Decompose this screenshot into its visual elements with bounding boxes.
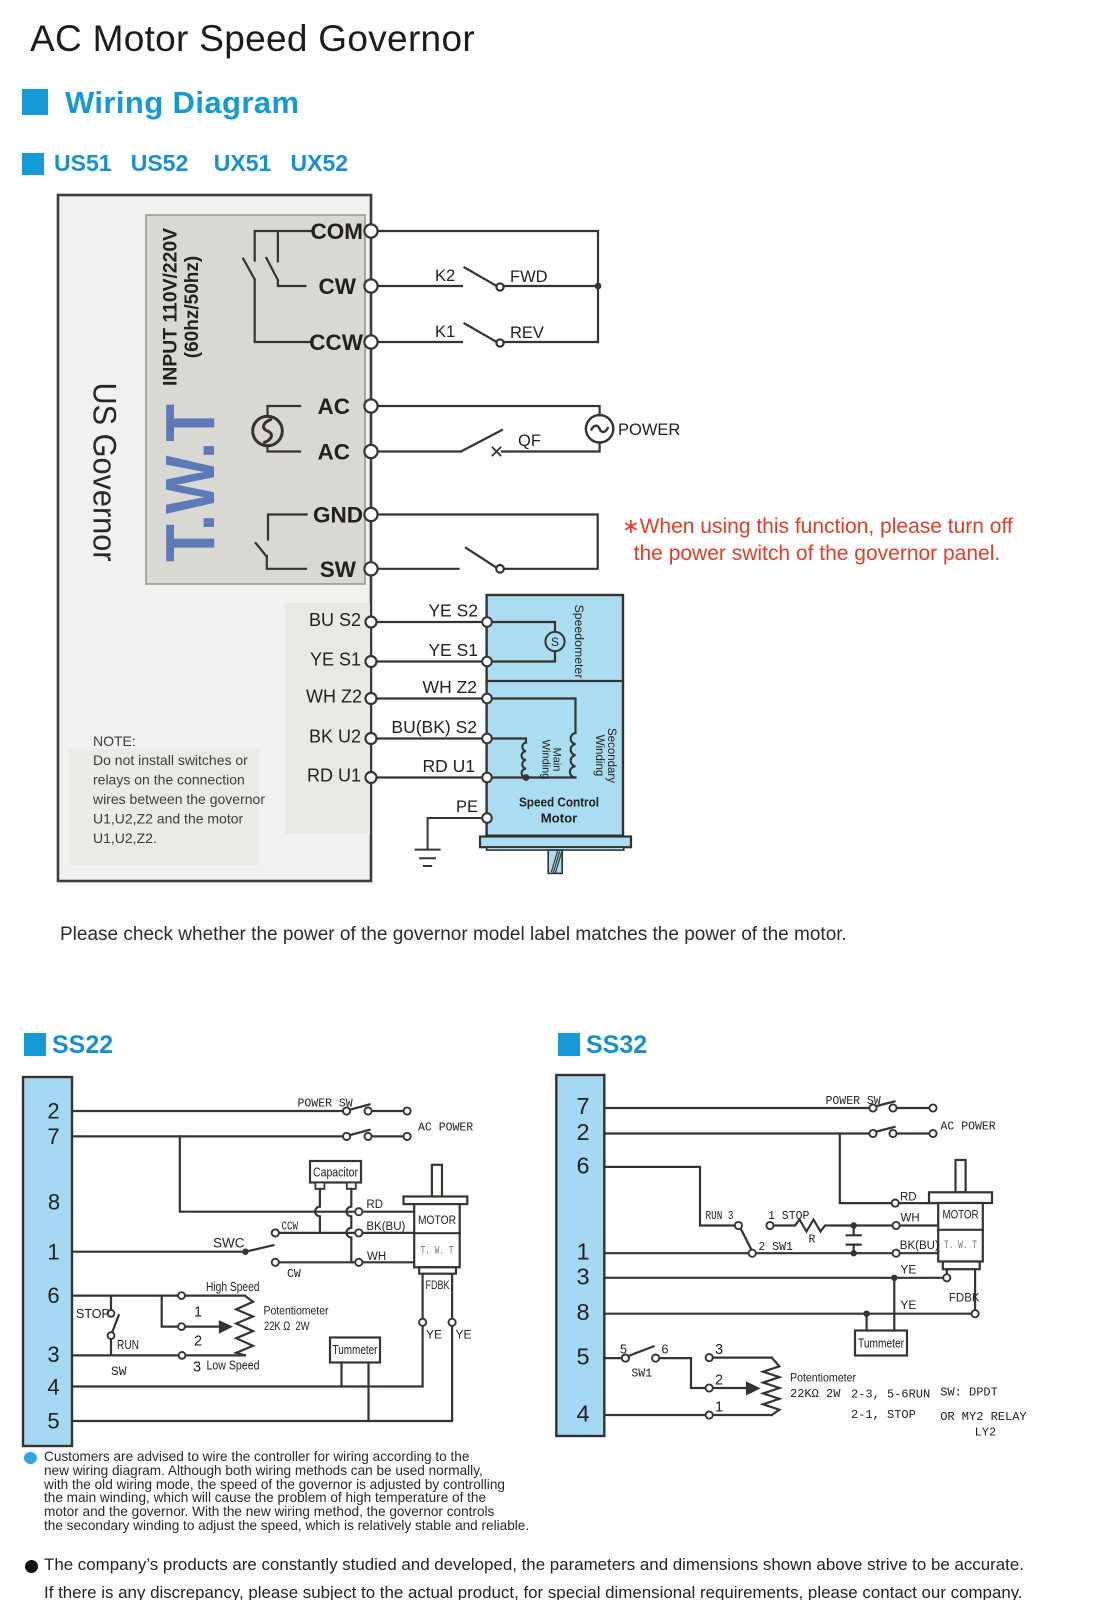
svg-text:2: 2 — [47, 1099, 59, 1124]
svg-text:2: 2 — [194, 1334, 202, 1350]
svg-text:U1,U2,Z2 and the motor: U1,U2,Z2 and the motor — [93, 811, 244, 827]
svg-text:CW: CW — [319, 274, 357, 299]
svg-text:Speedometer: Speedometer — [572, 605, 586, 679]
svg-text:PE: PE — [456, 798, 478, 816]
svg-text:T.W.T: T.W.T — [151, 404, 229, 562]
svg-text:WH Z2: WH Z2 — [306, 687, 362, 707]
svg-text:QF: QF — [518, 432, 541, 450]
svg-text:2: 2 — [715, 1373, 723, 1389]
svg-text:R: R — [809, 1234, 816, 1247]
svg-text:1 STOP: 1 STOP — [768, 1210, 810, 1223]
svg-text:FDBK: FDBK — [949, 1293, 980, 1305]
svg-text:5: 5 — [576, 1344, 589, 1370]
svg-text:REV: REV — [510, 324, 544, 342]
svg-text:Potentiometer: Potentiometer — [264, 1304, 329, 1318]
svg-text:AC POWER: AC POWER — [941, 1121, 996, 1134]
svg-text:Capacitor: Capacitor — [313, 1166, 358, 1180]
svg-text:YE S1: YE S1 — [310, 650, 361, 670]
svg-text:MOTOR: MOTOR — [418, 1215, 456, 1227]
svg-text:RD: RD — [366, 1199, 383, 1211]
svg-text:Low Speed: Low Speed — [207, 1359, 260, 1373]
svg-text:High Speed: High Speed — [206, 1280, 260, 1294]
svg-text:S: S — [551, 635, 559, 649]
svg-text:POWER SW: POWER SW — [826, 1095, 881, 1108]
svg-text:SW1: SW1 — [631, 1368, 652, 1381]
svg-text:relays on the connection: relays on the connection — [93, 772, 245, 788]
svg-text:CCW: CCW — [282, 1221, 299, 1234]
svg-text:1: 1 — [576, 1239, 589, 1265]
svg-text:CCW: CCW — [309, 330, 363, 355]
svg-text:2: 2 — [576, 1119, 589, 1145]
svg-text:T. W. T: T. W. T — [944, 1240, 977, 1252]
svg-text:Tummeter: Tummeter — [858, 1337, 904, 1351]
svg-text:SW: SW — [111, 1364, 127, 1379]
svg-text:YE: YE — [456, 1328, 472, 1342]
svg-text:NOTE:: NOTE: — [93, 733, 136, 749]
svg-text:SW: SW — [320, 557, 357, 582]
svg-text:POWER: POWER — [618, 421, 680, 439]
svg-text:1: 1 — [715, 1400, 723, 1416]
svg-text:4: 4 — [576, 1401, 589, 1427]
svg-text:1: 1 — [47, 1240, 59, 1265]
svg-text:RD U1: RD U1 — [307, 766, 361, 786]
svg-text:RD: RD — [900, 1192, 917, 1204]
svg-text:WH Z2: WH Z2 — [423, 677, 477, 697]
svg-text:YE: YE — [900, 1298, 916, 1312]
svg-text:7: 7 — [47, 1124, 59, 1149]
svg-text:Winding: Winding — [593, 735, 605, 777]
svg-text:COM: COM — [311, 219, 364, 244]
svg-text:RUN: RUN — [117, 1338, 139, 1352]
svg-text:SW: DPDT: SW: DPDT — [940, 1386, 998, 1400]
svg-text:WH: WH — [901, 1213, 920, 1225]
svg-text:BK(BU): BK(BU) — [900, 1240, 939, 1252]
svg-text:CW: CW — [287, 1268, 301, 1281]
svg-text:wires between the governor: wires between the governor — [92, 791, 265, 807]
svg-text:BU(BK) S2: BU(BK) S2 — [391, 717, 477, 737]
svg-text:FWD: FWD — [510, 268, 548, 286]
svg-text:4: 4 — [47, 1375, 59, 1400]
svg-text:1: 1 — [194, 1305, 202, 1321]
svg-text:STOP: STOP — [76, 1307, 110, 1321]
svg-text:Motor: Motor — [541, 811, 578, 826]
svg-text:3: 3 — [715, 1342, 723, 1358]
svg-text:2-1, STOP: 2-1, STOP — [851, 1408, 916, 1422]
svg-text:8: 8 — [48, 1190, 60, 1215]
svg-text:BK(BU): BK(BU) — [366, 1221, 405, 1233]
svg-text:MOTOR: MOTOR — [943, 1210, 979, 1222]
svg-text:Potentiometer: Potentiometer — [790, 1371, 856, 1385]
svg-text:6: 6 — [47, 1283, 59, 1308]
svg-text:RUN 3: RUN 3 — [706, 1210, 734, 1223]
svg-text:AC: AC — [318, 440, 351, 465]
svg-text:FDBK: FDBK — [426, 1280, 450, 1292]
svg-text:Do not install switches or: Do not install switches or — [93, 752, 248, 768]
svg-text:6: 6 — [662, 1343, 669, 1357]
svg-text:U1,U2,Z2.: U1,U2,Z2. — [93, 830, 157, 846]
svg-text:INPUT 110V/220V: INPUT 110V/220V — [161, 228, 182, 386]
svg-text:(60hz/50hz): (60hz/50hz) — [182, 256, 203, 358]
svg-text:BU S2: BU S2 — [309, 610, 361, 630]
svg-text:7: 7 — [576, 1093, 589, 1119]
svg-text:SWC: SWC — [213, 1236, 245, 1251]
svg-text:OR MY2 RELAY: OR MY2 RELAY — [940, 1410, 1026, 1424]
svg-text:AC: AC — [318, 394, 351, 419]
svg-text:Winding: Winding — [540, 740, 552, 780]
svg-text:YE S1: YE S1 — [428, 640, 478, 660]
svg-text:YE S2: YE S2 — [428, 601, 478, 621]
svg-text:YE: YE — [426, 1328, 442, 1342]
svg-text:3: 3 — [576, 1264, 589, 1290]
svg-text:5: 5 — [47, 1409, 59, 1434]
svg-text:GND: GND — [313, 503, 363, 528]
svg-text:US Governor: US Governor — [87, 383, 123, 562]
svg-text:22KΩ 2W: 22KΩ 2W — [790, 1387, 841, 1401]
svg-text:8: 8 — [576, 1299, 589, 1325]
svg-text:3: 3 — [193, 1360, 201, 1376]
svg-text:WH: WH — [367, 1251, 386, 1263]
svg-text:YE: YE — [900, 1263, 916, 1277]
svg-text:6: 6 — [576, 1153, 589, 1179]
svg-text:K2: K2 — [435, 267, 455, 285]
svg-text:22K Ω 2W: 22K Ω 2W — [264, 1319, 310, 1333]
svg-text:3: 3 — [47, 1342, 59, 1367]
svg-text:5: 5 — [620, 1343, 627, 1357]
svg-text:POWER SW: POWER SW — [298, 1098, 353, 1111]
svg-text:2 SW1: 2 SW1 — [758, 1241, 793, 1254]
svg-text:K1: K1 — [435, 323, 455, 341]
svg-text:Speed Control: Speed Control — [519, 795, 599, 810]
svg-text:RD U1: RD U1 — [422, 756, 475, 776]
svg-text:T. W. T: T. W. T — [421, 1246, 454, 1258]
svg-text:2-3, 5-6RUN: 2-3, 5-6RUN — [851, 1388, 930, 1402]
svg-text:Secondary: Secondary — [605, 728, 617, 783]
svg-text:AC POWER: AC POWER — [418, 1122, 473, 1135]
svg-text:LY2: LY2 — [975, 1426, 997, 1440]
svg-text:Tummeter: Tummeter — [333, 1343, 378, 1357]
svg-text:BK U2: BK U2 — [309, 727, 361, 747]
